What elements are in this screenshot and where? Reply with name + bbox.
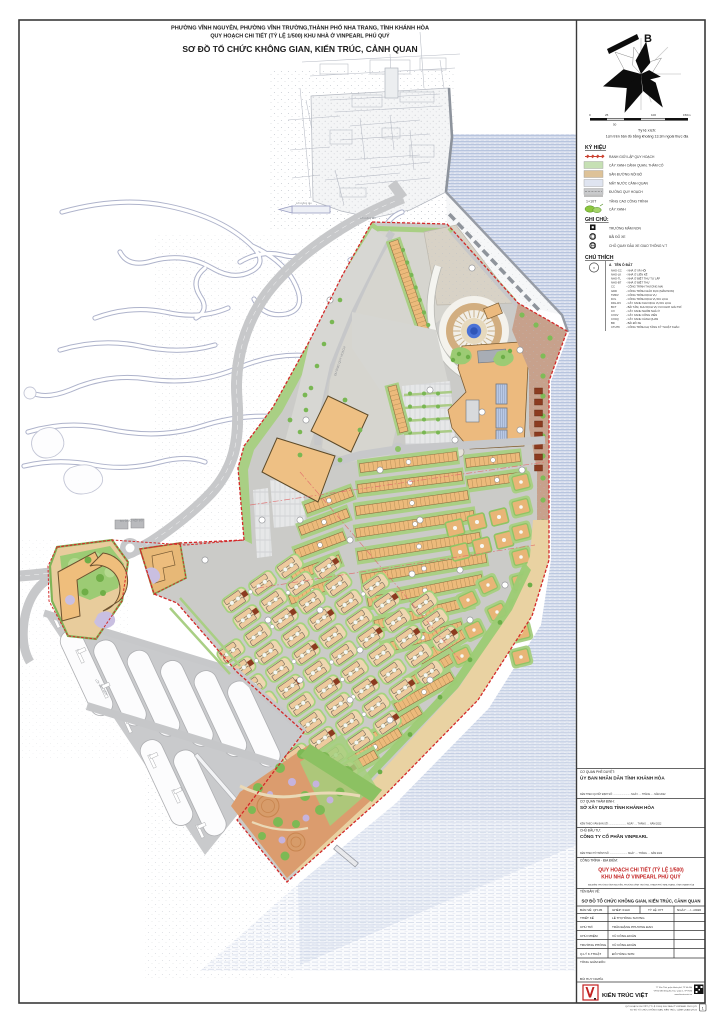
svg-text:NHO-TL: NHO-TL xyxy=(611,277,622,281)
svg-text:CTHTK: CTHTK xyxy=(611,325,620,329)
svg-text:CXCV: CXCV xyxy=(611,313,619,317)
svg-text:CÔNG TY CỔ PHẦN VINPEARL: CÔNG TY CỔ PHẦN VINPEARL xyxy=(580,832,648,839)
svg-text:RANH GIỚI LẬP QUY HOẠCH: RANH GIỚI LẬP QUY HOẠCH xyxy=(609,154,655,159)
svg-text:KÝ HIỆU: KÝ HIỆU xyxy=(585,143,606,151)
svg-text:KÈM THEO TỜ TRÌNH SỐ: ........: KÈM THEO TỜ TRÌNH SỐ: ..................… xyxy=(580,852,663,855)
svg-text:100: 100 xyxy=(651,113,656,117)
svg-text:BCT: BCT xyxy=(611,305,617,309)
svg-text:CÂY XANH CẢNH QUAN, THẢM CỎ: CÂY XANH CẢNH QUAN, THẢM CỎ xyxy=(609,163,664,168)
svg-text:GHÉP: 01A0: GHÉP: 01A0 xyxy=(612,907,630,912)
svg-text:NGÀY: .../.../2020: NGÀY: .../.../2020 xyxy=(677,908,701,912)
svg-text:TRƯỜNG MẦM NON: TRƯỜNG MẦM NON xyxy=(609,226,641,231)
svg-text:x: x xyxy=(593,266,595,270)
svg-text:CÂY XANH: CÂY XANH xyxy=(609,208,626,212)
svg-text:CƠ QUAN PHÊ DUYỆT:: CƠ QUAN PHÊ DUYỆT: xyxy=(580,769,615,774)
svg-text:DDL-DV: DDL-DV xyxy=(611,301,621,305)
svg-text:ĐỖ HÙNG SƠN: ĐỖ HÙNG SƠN xyxy=(612,951,634,956)
svg-text:CC: CC xyxy=(611,285,615,289)
svg-text:BÃI ĐỖ XE: BÃI ĐỖ XE xyxy=(609,234,626,239)
svg-text:50: 50 xyxy=(613,123,617,127)
svg-text:KÈM THEO QUYẾT ĐỊNH SỐ: ......: KÈM THEO QUYẾT ĐỊNH SỐ: ................… xyxy=(580,793,666,796)
svg-text:SƠ ĐỒ TỔ CHỨC KHÔNG GIAN, KIẾN: SƠ ĐỒ TỔ CHỨC KHÔNG GIAN, KIẾN TRÚC, CẢN… xyxy=(182,43,417,54)
svg-text:Q.LÝ K.THUẬT: Q.LÝ K.THUẬT xyxy=(580,952,601,956)
svg-text:SÂN ĐƯỜNG NỘI BỘ: SÂN ĐƯỜNG NỘI BỘ xyxy=(609,172,643,177)
svg-text:BD: BD xyxy=(611,321,615,325)
svg-text:MẶT NƯỚC CẢNH QUAN: MẶT NƯỚC CẢNH QUAN xyxy=(609,181,649,186)
svg-text:QUY HOẠCH CHI TIẾT (TỶ LỆ 1/50: QUY HOẠCH CHI TIẾT (TỶ LỆ 1/500) KHU NHÀ… xyxy=(625,1005,697,1008)
svg-text:BÙI HUY NGHĨA: BÙI HUY NGHĨA xyxy=(580,976,604,981)
svg-text:CƠ QUAN THẨM ĐỊNH:: CƠ QUAN THẨM ĐỊNH: xyxy=(580,799,615,804)
svg-text:LÊ THỊ HỒNG SƯƠNG: LÊ THỊ HỒNG SƯƠNG xyxy=(612,915,645,920)
svg-text:25: 25 xyxy=(605,113,609,117)
svg-text:VŨ CÔNG ĐOÀN: VŨ CÔNG ĐOÀN xyxy=(612,933,636,938)
svg-text:TRƯỞNG PHÒNG: TRƯỞNG PHÒNG xyxy=(580,942,607,947)
svg-text:77 Trần Thái, quận Hoàn phố, T: 77 Trần Thái, quận Hoàn phố, TP Hà Nội xyxy=(656,986,693,989)
svg-text:BẢN VẼ: QH-05: BẢN VẼ: QH-05 xyxy=(580,907,602,912)
svg-text:NHO-LK: NHO-LK xyxy=(611,273,621,277)
svg-text:GHI CHÚ:: GHI CHÚ: xyxy=(585,216,609,223)
svg-text:Lối xuống tàu: Lối xuống tàu xyxy=(360,216,376,220)
svg-text:NHO-BT: NHO-BT xyxy=(611,281,622,285)
svg-text:CX: CX xyxy=(611,309,615,313)
svg-text:CHỦ TRÌ: CHỦ TRÌ xyxy=(580,924,593,929)
svg-text:1+10T: 1+10T xyxy=(586,200,597,204)
svg-text:SƠ ĐỒ TỔ CHỨC KHÔNG GIAN, KIẾN: SƠ ĐỒ TỔ CHỨC KHÔNG GIAN, KIẾN TRÚC, CẢN… xyxy=(582,899,701,904)
svg-text:CHÚ THÍCH: CHÚ THÍCH xyxy=(585,253,614,261)
svg-text:TÊN BẢN VẼ:: TÊN BẢN VẼ: xyxy=(580,889,600,894)
svg-text:KIẾN TRÚC VIỆT: KIẾN TRÚC VIỆT xyxy=(602,991,649,999)
svg-text:TẦNG CAO CÔNG TRÌNH: TẦNG CAO CÔNG TRÌNH xyxy=(609,199,649,204)
svg-text:ĐƯỜNG QUY HOẠCH: ĐƯỜNG QUY HOẠCH xyxy=(609,189,643,194)
svg-text:TMDV: TMDV xyxy=(611,293,619,297)
svg-text:CÔNG TRÌNH - ĐỊA ĐIỂM:: CÔNG TRÌNH - ĐỊA ĐIỂM: xyxy=(580,858,618,863)
svg-text:150m: 150m xyxy=(683,113,691,117)
svg-text:TRẦN ĐẶNG PHƯƠNG ĐAN: TRẦN ĐẶNG PHƯƠNG ĐAN xyxy=(612,925,653,929)
svg-text:GDD: GDD xyxy=(611,289,617,293)
svg-text:PHƯỜNG VĨNH NGUYÊN, PHƯỜNG VĨN: PHƯỜNG VĨNH NGUYÊN, PHƯỜNG VĨNH TRƯỜNG,T… xyxy=(171,24,429,32)
svg-text:A TÊN Ô ĐẤT: A TÊN Ô ĐẤT xyxy=(609,262,633,267)
svg-text:SỞ XÂY DỰNG TỈNH KHÁNH HÒA: SỞ XÂY DỰNG TỈNH KHÁNH HÒA xyxy=(580,803,655,810)
svg-text:CHỖ QUAY ĐẦU XE GIAO THÔNG V.T: CHỖ QUAY ĐẦU XE GIAO THÔNG V.T xyxy=(609,243,667,248)
svg-text:ĐƯỜNG NỘI BỘ: ĐƯỜNG NỘI BỘ xyxy=(120,517,144,523)
svg-text:ĐỊA ĐIỂM: PHƯỜNG VĨNH NGUYÊN,: ĐỊA ĐIỂM: PHƯỜNG VĨNH NGUYÊN, PHƯỜNG VĨN… xyxy=(588,884,695,887)
svg-text:QUY HOẠCH CHI TIẾT (TỶ LỆ 1/50: QUY HOẠCH CHI TIẾT (TỶ LỆ 1/500) xyxy=(598,866,684,874)
svg-text:B: B xyxy=(644,33,652,45)
svg-text:CHỦ ĐẦU TƯ:: CHỦ ĐẦU TƯ: xyxy=(580,828,601,833)
svg-text:SƠ ĐỒ TỔ CHỨC KHÔNG GIAN, KIẾN: SƠ ĐỒ TỔ CHỨC KHÔNG GIAN, KIẾN TRÚC, CẢN… xyxy=(630,1009,698,1012)
svg-text:Lối xuống tàu: Lối xuống tàu xyxy=(296,201,312,205)
svg-text:NHO-CC: NHO-CC xyxy=(611,269,622,273)
svg-text:ỦY BAN NHÂN DÂN TỈNH KHÁNH HÒA: ỦY BAN NHÂN DÂN TỈNH KHÁNH HÒA xyxy=(580,774,665,781)
svg-text:THIẾT KẾ: THIẾT KẾ xyxy=(580,915,594,920)
svg-text:www.kientrucviet.vn: www.kientrucviet.vn xyxy=(674,993,692,996)
svg-text:KÈM THEO VĂN BẢN SỐ: .........: KÈM THEO VĂN BẢN SỐ: ...................… xyxy=(580,823,662,826)
svg-text:VPGD:285 Đống Đa Tân, Quận 1,: VPGD:285 Đống Đa Tân, Quận 1, TP HCM xyxy=(654,990,693,993)
svg-text:TỔNG GIÁM ĐỐC: TỔNG GIÁM ĐỐC xyxy=(580,959,606,964)
svg-text:KHU NHÀ Ở VINPEARL PHÚ QUÝ: KHU NHÀ Ở VINPEARL PHÚ QUÝ xyxy=(601,874,681,881)
svg-text:QUY HOẠCH CHI TIẾT (TỶ LỆ 1/50: QUY HOẠCH CHI TIẾT (TỶ LỆ 1/500) KHU NHÀ… xyxy=(210,32,390,40)
svg-text:VŨ CÔNG ĐOÀN: VŨ CÔNG ĐOÀN xyxy=(612,942,636,947)
svg-text:1cm trên bản đồ bằng khoảng 13: 1cm trên bản đồ bằng khoảng 13.3m ngoài … xyxy=(606,134,689,139)
svg-text:- CÂY XANH KHU DỊCH VỤ DU LỊCH: - CÂY XANH KHU DỊCH VỤ DU LỊCH xyxy=(626,301,671,305)
svg-text:CXCQ: CXCQ xyxy=(611,317,619,321)
svg-text:TỶ LỆ: P/T: TỶ LỆ: P/T xyxy=(648,907,663,912)
svg-text:CHỦ NHIỆM: CHỦ NHIỆM xyxy=(580,933,598,938)
svg-text:DVL: DVL xyxy=(611,297,617,301)
svg-text:Tỷ lệ xích:: Tỷ lệ xích: xyxy=(638,128,656,133)
